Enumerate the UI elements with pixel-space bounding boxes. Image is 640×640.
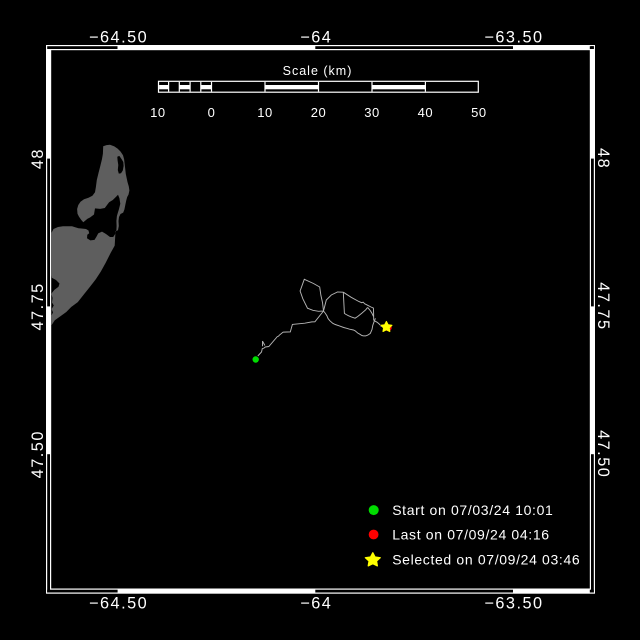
svg-text:−64.50: −64.50 (89, 595, 148, 613)
svg-text:47.50: 47.50 (594, 430, 612, 478)
svg-text:0: 0 (208, 105, 216, 120)
svg-text:Start on 07/03/24 10:01: Start on 07/03/24 10:01 (392, 502, 553, 518)
svg-text:−64.50: −64.50 (89, 28, 148, 46)
svg-text:−64: −64 (300, 28, 332, 46)
svg-text:Scale (km): Scale (km) (283, 64, 353, 78)
svg-text:20: 20 (311, 105, 326, 120)
svg-text:−63.50: −63.50 (484, 28, 543, 46)
svg-text:30: 30 (364, 105, 379, 120)
svg-text:48: 48 (29, 148, 47, 169)
svg-text:10: 10 (257, 105, 272, 120)
svg-text:47.50: 47.50 (29, 430, 47, 478)
svg-text:Selected on 07/09/24 03:46: Selected on 07/09/24 03:46 (392, 552, 580, 568)
svg-text:47.75: 47.75 (29, 282, 47, 330)
svg-text:50: 50 (471, 105, 486, 120)
svg-text:−63.50: −63.50 (484, 595, 543, 613)
svg-text:Last on 07/09/24 04:16: Last on 07/09/24 04:16 (392, 526, 550, 542)
svg-text:47.75: 47.75 (594, 282, 612, 330)
svg-text:48: 48 (594, 148, 612, 169)
svg-text:−64: −64 (300, 595, 332, 613)
svg-text:10: 10 (150, 105, 165, 120)
svg-text:40: 40 (418, 105, 433, 120)
